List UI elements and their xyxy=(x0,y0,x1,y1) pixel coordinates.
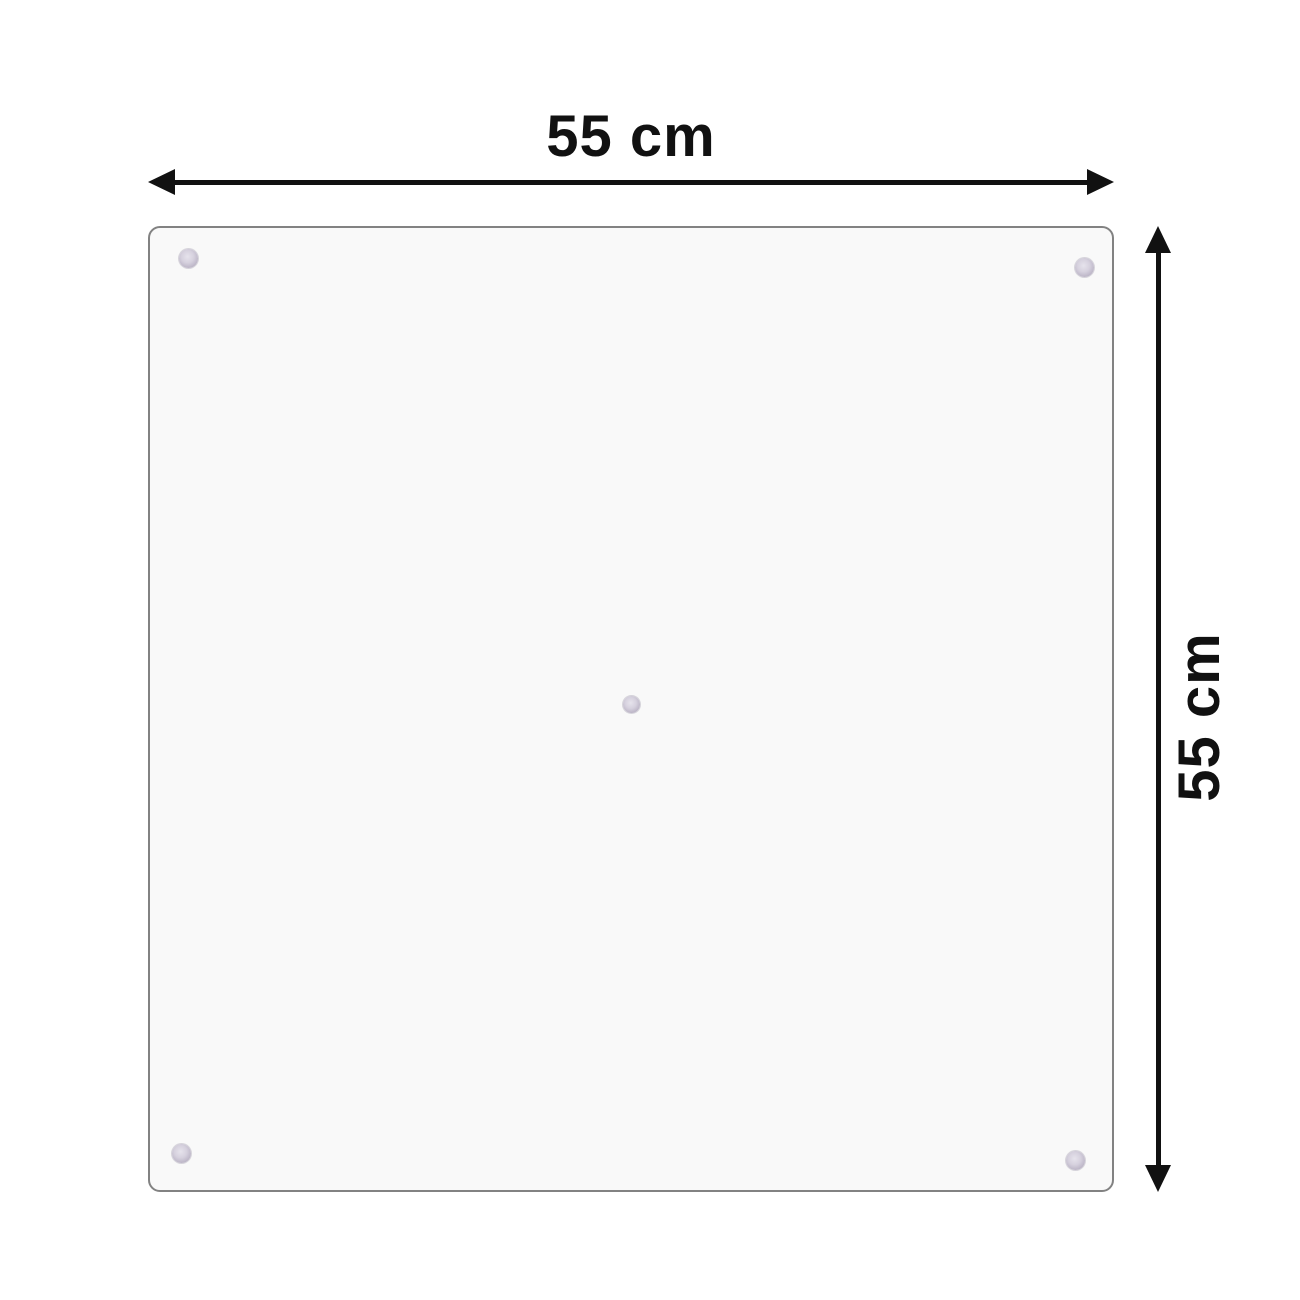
product-dimension-diagram: 55 cm 55 cm xyxy=(0,0,1300,1300)
suction-cup-bottom-right-icon xyxy=(1066,1151,1085,1170)
height-dimension-label: 55 cm xyxy=(1171,632,1229,801)
glass-panel xyxy=(148,226,1114,1192)
suction-cup-center-icon xyxy=(623,696,640,713)
dimension-line xyxy=(1156,248,1161,1170)
width-dimension-arrow xyxy=(148,169,1114,195)
width-dimension-label: 55 cm xyxy=(148,108,1114,166)
suction-cup-bottom-left-icon xyxy=(172,1144,191,1163)
dimension-line xyxy=(170,180,1092,185)
suction-cup-top-right-icon xyxy=(1075,258,1094,277)
arrow-down-icon xyxy=(1145,1165,1171,1192)
suction-cup-top-left-icon xyxy=(179,249,198,268)
arrow-right-icon xyxy=(1087,169,1114,195)
